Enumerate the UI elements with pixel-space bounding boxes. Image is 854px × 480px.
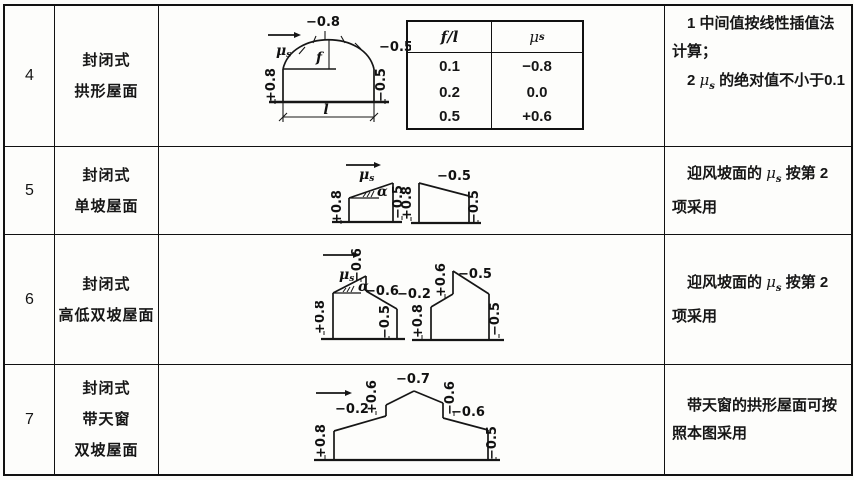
mu-s-symbol: μ — [766, 273, 776, 291]
coef-left-wall: +0.8 — [411, 304, 426, 338]
row7-name-line3: 双坡屋面 — [74, 435, 138, 466]
wind-arrowhead — [345, 390, 352, 396]
coef-step-wall: +0.6 — [434, 263, 449, 297]
row5-notes: 迎风坡面的 μs 按第 2 项采用 — [665, 147, 851, 235]
dimension-marks — [275, 31, 385, 122]
rise-f-label: f — [315, 50, 325, 66]
row5-diagram-cell: μs α +0.8 −0.5 −0.5 +0.8 −0.5 — [159, 147, 665, 235]
coef-right-wall: −0.5 — [485, 426, 500, 460]
row4-type-name: 封闭式 拱形屋面 — [55, 6, 159, 147]
row7-name-line2: 带天窗 — [82, 404, 130, 435]
subtable-cell: −0.8 — [492, 53, 582, 79]
row6-name-line1: 封闭式 — [82, 269, 130, 300]
coef-ridge-step: −0.6 — [350, 249, 365, 282]
row5-number: 5 — [5, 147, 55, 235]
coef-monitor-front: +0.6 — [365, 380, 380, 414]
coef-high-slope: −0.5 — [458, 267, 492, 282]
coef-left-wall: +0.8 — [264, 68, 279, 102]
coef-left-wall: +0.8 — [330, 190, 345, 224]
coef-roof: −0.5 — [437, 169, 471, 184]
wind-arrowhead — [374, 162, 381, 168]
row6-diagram-cell: μs α −0.6 −0.6 +0.8 −0.5 −0.2 +0.6 −0.5 … — [159, 235, 665, 365]
row4-notes: 1 中间值按线性插值法计算； 2 μs 的绝对值不小于0.1 — [665, 6, 851, 147]
subtable-cell: +0.6 — [492, 105, 582, 128]
coef-left-wall: +0.8 — [314, 424, 329, 458]
row6-notes: 迎风坡面的 μs 按第 2 项采用 — [665, 235, 851, 365]
coef-low-slope: −0.2 — [397, 287, 431, 302]
subtable-cell: 0.5 — [408, 105, 492, 128]
row4-diagram-cell: μs −0.8 −0.5 +0.8 −0.5 f l f/l μs 0.1 −0… — [159, 6, 665, 147]
code-table-page: 4 封闭式 拱形屋面 — [0, 0, 854, 480]
row7-notes: 带天窗的拱形屋面可按照本图采用 — [665, 365, 851, 474]
subtable-cell: 0.2 — [408, 79, 492, 105]
row7-diagram-cell: +0.8 −0.2 +0.6 −0.7 −0.6 −0.6 −0.5 — [159, 365, 665, 474]
row5-type-name: 封闭式 单坡屋面 — [55, 147, 159, 235]
subtable-cell: 0.0 — [492, 79, 582, 105]
coef-windward-slope: −0.2 — [335, 402, 369, 417]
subtable-cell: 0.1 — [408, 53, 492, 79]
coef-monitor-top: −0.7 — [396, 372, 430, 387]
f-over-l-subtable: f/l μs 0.1 −0.8 0.2 0.0 0.5 +0.6 — [406, 20, 584, 130]
note-line: 迎风坡面的 μs 按第 2 项采用 — [672, 268, 846, 331]
note-line: 1 中间值按线性插值法计算； — [672, 10, 846, 66]
row5-name-line2: 单坡屋面 — [74, 191, 138, 222]
row7-name-line1: 封闭式 — [82, 373, 130, 404]
coef-lee-slope: −0.6 — [451, 405, 485, 420]
span-l-label: l — [323, 102, 328, 118]
coef-lee-slope: −0.6 — [365, 284, 399, 299]
high-low-gable-roof-diagram: μs α −0.6 −0.6 +0.8 −0.5 −0.2 +0.6 −0.5 … — [315, 249, 515, 344]
monoslope-roof-diagram: μs α +0.8 −0.5 −0.5 +0.8 −0.5 — [329, 151, 489, 231]
note-line: 带天窗的拱形屋面可按照本图采用 — [672, 392, 846, 448]
coef-right-wall: −0.5 — [378, 305, 393, 339]
coef-right-wall: −0.5 — [374, 68, 389, 102]
note-line: 迎风坡面的 μs 按第 2 项采用 — [672, 159, 846, 222]
wind-arrowhead — [294, 32, 301, 38]
row7-type-name: 封闭式 带天窗 双坡屋面 — [55, 365, 159, 474]
subtable-header-mus: μs — [492, 22, 582, 53]
row6-type-name: 封闭式 高低双坡屋面 — [55, 235, 159, 365]
alpha-symbol: α — [377, 184, 388, 200]
subtable-header-fl: f/l — [408, 22, 492, 53]
mu-s-symbol: μs — [276, 43, 291, 60]
coef-top: −0.8 — [306, 15, 340, 30]
row4-number: 4 — [5, 6, 55, 147]
mu-s-symbol: μs — [359, 167, 374, 184]
arched-roof-diagram: μs −0.8 −0.5 +0.8 −0.5 f l — [256, 10, 411, 140]
coef-right-wall: −0.5 — [467, 190, 482, 224]
row4-name-line1: 封闭式 — [82, 45, 130, 76]
row6-number: 6 — [5, 235, 55, 365]
row7-number: 7 — [5, 365, 55, 474]
row5-name-line1: 封闭式 — [82, 160, 130, 191]
coef-left-wall: +0.8 — [315, 300, 328, 334]
note-line: 2 μs 的绝对值不小于0.1 — [672, 66, 846, 101]
coef-right-wall: −0.5 — [488, 302, 503, 336]
mu-s-symbol: μ — [766, 164, 776, 182]
row4-name-line2: 拱形屋面 — [74, 76, 138, 107]
shape-coefficient-table: 4 封闭式 拱形屋面 — [3, 4, 853, 476]
mu-s-symbol: μ — [700, 71, 710, 89]
coef-left-wall: +0.8 — [400, 186, 415, 220]
row6-name-line2: 高低双坡屋面 — [58, 300, 154, 331]
monitor-gable-roof-diagram: +0.8 −0.2 +0.6 −0.7 −0.6 −0.6 −0.5 — [312, 371, 504, 471]
